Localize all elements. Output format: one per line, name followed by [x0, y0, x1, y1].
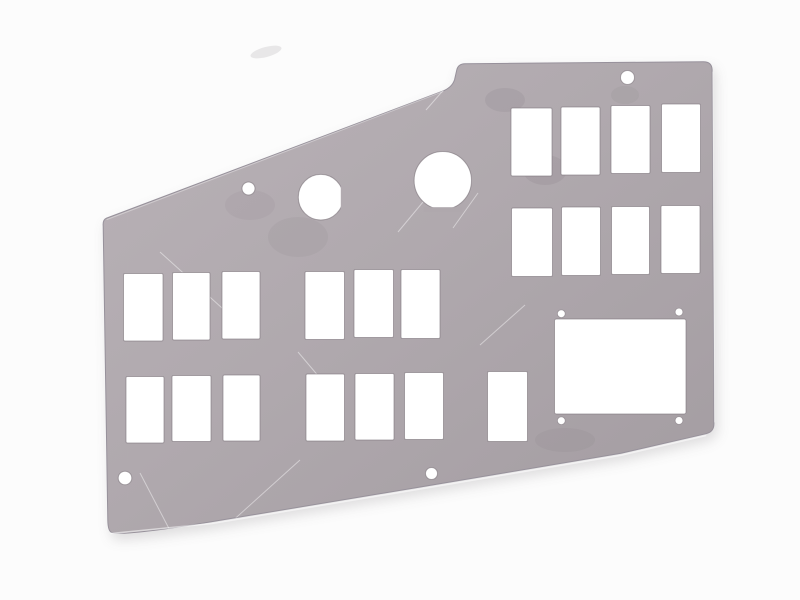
switch-cutout [126, 377, 164, 444]
display-corner-hole [557, 310, 565, 318]
switch-cutout [512, 208, 553, 277]
surface-smudge [268, 217, 328, 257]
switch-cutout [222, 272, 260, 340]
cutout-row-middle-top-row [305, 270, 440, 340]
switch-cutout [562, 207, 601, 276]
switch-cutout [611, 106, 650, 174]
background-smudge [249, 43, 282, 61]
mounting-hole [242, 182, 255, 195]
switch-cutout [306, 374, 345, 441]
switch-cutout [354, 270, 394, 338]
round-cutout-flat-edge [424, 207, 463, 212]
surface-smudge [535, 428, 595, 452]
display-cutout-group [555, 308, 687, 425]
switch-cutout [124, 274, 164, 342]
switch-cutout [172, 376, 211, 442]
switch-cutout [401, 270, 440, 339]
round-cutout [298, 174, 343, 220]
switch-cutout [305, 272, 345, 340]
metal-panel [103, 62, 714, 543]
display-corner-hole [675, 417, 683, 425]
mounting-hole [426, 468, 438, 480]
switch-cutout [355, 374, 394, 441]
display-corner-hole [557, 417, 565, 425]
switch-cutout [173, 273, 211, 341]
panel-photo [0, 0, 800, 600]
photo-canvas [0, 0, 800, 600]
switch-cutout [405, 373, 444, 440]
switch-cutout [561, 107, 600, 175]
round-cutout [414, 152, 471, 210]
cutout-row-left-top-row [124, 272, 261, 342]
cutout-row-left-bottom-row [126, 375, 260, 443]
switch-cutout [662, 104, 701, 173]
mounting-hole [118, 471, 132, 485]
switch-cutout [612, 207, 650, 275]
switch-cutout [511, 108, 552, 176]
display-cutout [555, 319, 687, 414]
round-cutout-flat-edge [341, 187, 346, 209]
switch-cutout [488, 372, 528, 442]
mounting-hole [621, 71, 635, 85]
switch-cutout [661, 206, 700, 274]
cutout-row-middle-bottom-row [306, 372, 528, 442]
surface-smudge [611, 86, 639, 104]
display-corner-hole [675, 308, 683, 316]
switch-cutout [223, 375, 260, 441]
